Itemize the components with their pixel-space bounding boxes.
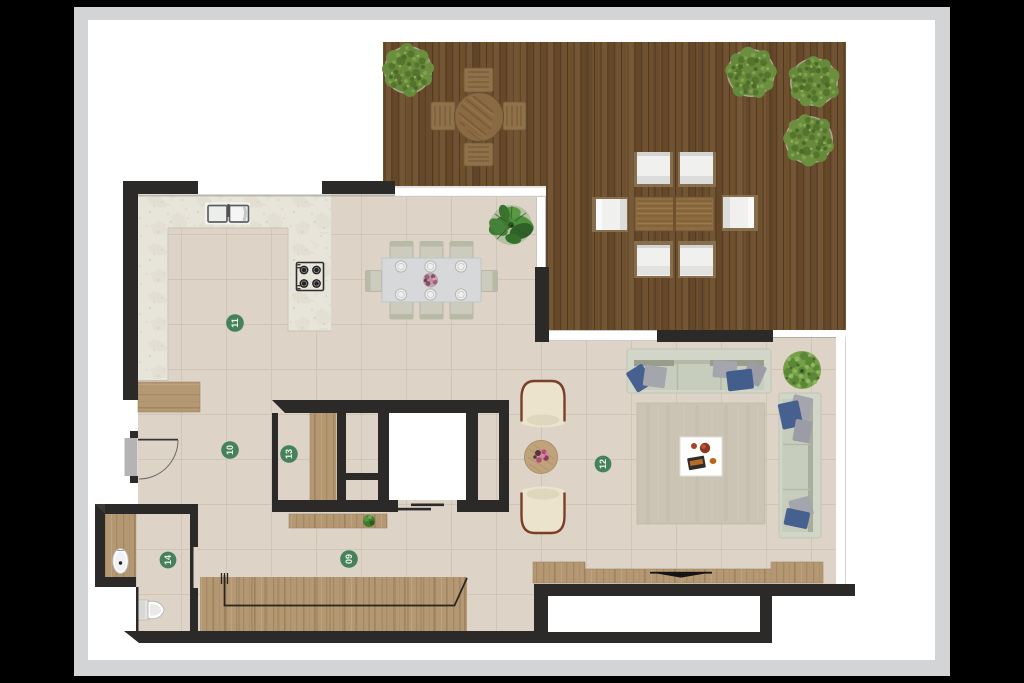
svg-text:13: 13 [284,449,294,459]
svg-text:14: 14 [163,555,173,565]
svg-text:12: 12 [598,459,608,469]
svg-text:10: 10 [225,445,235,455]
svg-text:11: 11 [230,318,240,328]
svg-text:09: 09 [344,554,354,564]
